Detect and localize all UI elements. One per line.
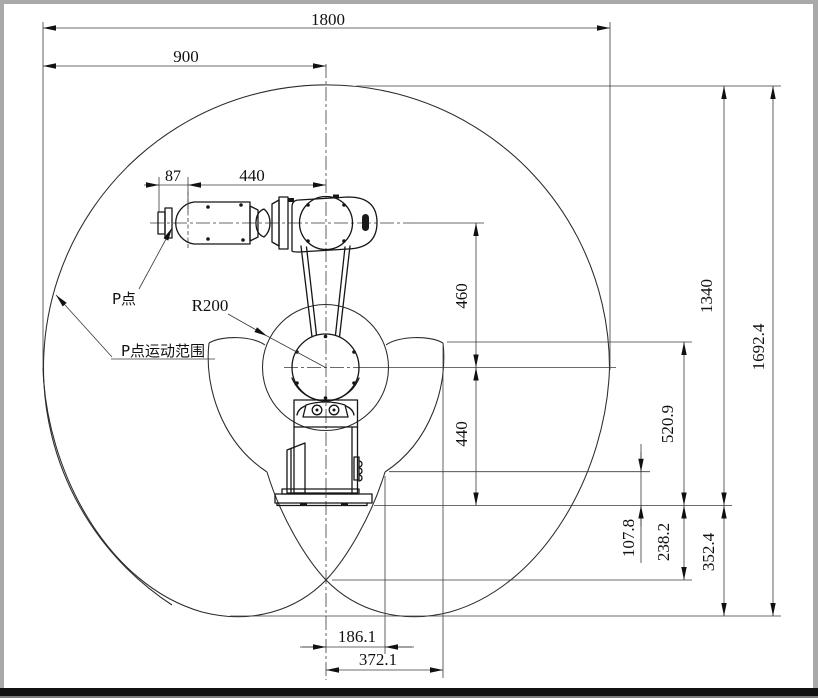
mount-hole-dot xyxy=(316,409,319,412)
dim-1692: 1692.4 xyxy=(749,323,768,370)
housing-slot xyxy=(362,214,369,231)
bolt-dot xyxy=(342,239,346,243)
bolt-dot xyxy=(295,381,299,385)
bolt-dot xyxy=(206,237,210,241)
drawing-page: 1800 900 87 440 460 440 520.9 107.8 238.… xyxy=(0,0,818,698)
label-r200: R200 xyxy=(192,296,229,315)
label-p-range: P点运动范围 xyxy=(121,342,205,360)
dim-440-top: 440 xyxy=(239,166,265,185)
bottom-border-bar xyxy=(0,688,818,696)
dim-520: 520.9 xyxy=(658,405,677,443)
dim-107: 107.8 xyxy=(619,519,638,557)
bolt-dot xyxy=(352,350,356,354)
label-p-point: P点 xyxy=(112,290,136,308)
mount-hole-dot xyxy=(333,409,336,412)
dim-352: 352.4 xyxy=(699,532,718,571)
dim-87: 87 xyxy=(165,168,181,185)
dim-238: 238.2 xyxy=(654,523,673,561)
bolt-dot xyxy=(342,203,346,207)
bolt-dot xyxy=(306,203,310,207)
bolt-dot xyxy=(324,335,328,339)
bolt-dot xyxy=(239,203,243,207)
housing-screw xyxy=(288,198,294,202)
bolt-dot xyxy=(241,238,245,242)
dim-1340: 1340 xyxy=(697,279,716,313)
base-foot-mark xyxy=(341,503,348,506)
dim-1800: 1800 xyxy=(311,10,345,29)
bolt-dot xyxy=(324,396,328,400)
robot-working-range-drawing: 1800 900 87 440 460 440 520.9 107.8 238.… xyxy=(0,0,818,698)
dim-186: 186.1 xyxy=(338,627,376,646)
bolt-dot xyxy=(352,381,356,385)
base-foot-mark xyxy=(300,503,307,506)
bolt-dot xyxy=(206,205,210,209)
dim-440-vert: 440 xyxy=(452,421,471,447)
bolt-dot xyxy=(306,239,310,243)
dim-460: 460 xyxy=(452,283,471,309)
dim-900: 900 xyxy=(173,47,199,66)
dim-372: 372.1 xyxy=(359,650,397,669)
